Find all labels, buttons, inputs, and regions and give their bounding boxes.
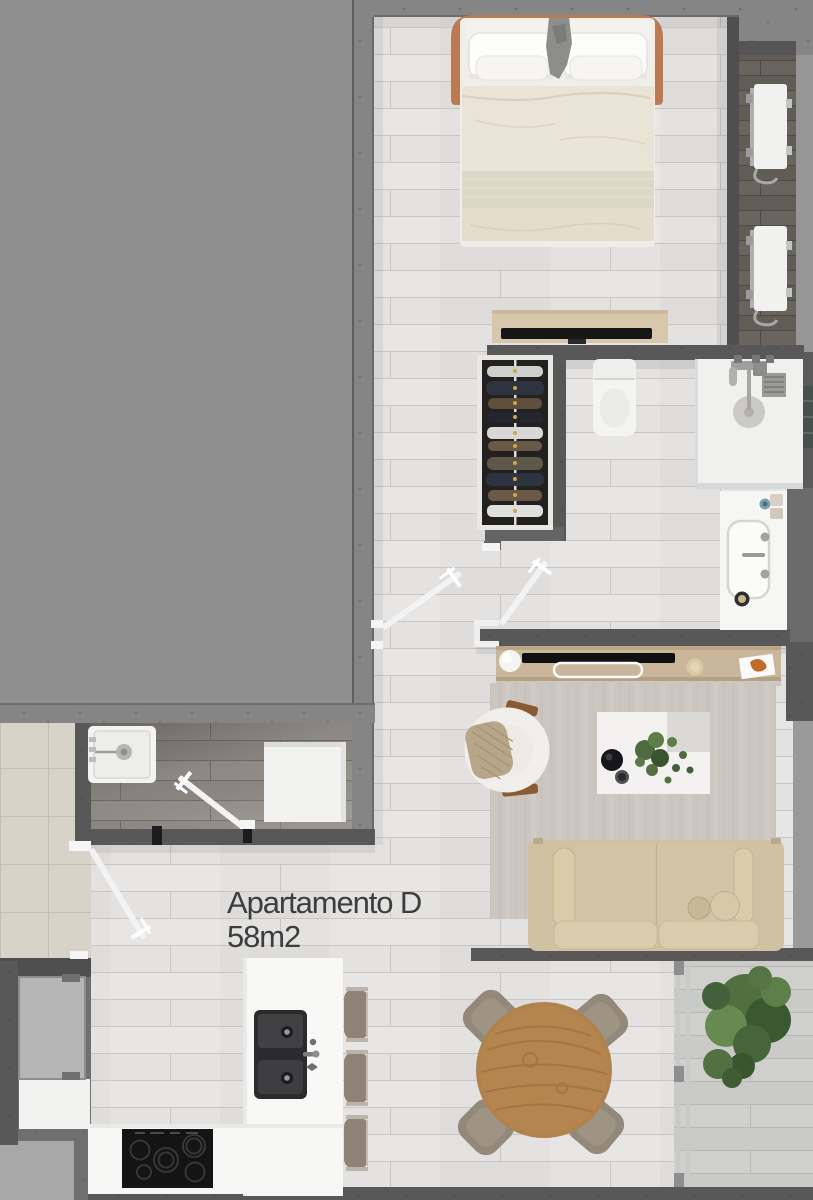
svg-text:Apartamento D: Apartamento D [227,885,421,920]
svg-text:58m2: 58m2 [227,919,300,954]
